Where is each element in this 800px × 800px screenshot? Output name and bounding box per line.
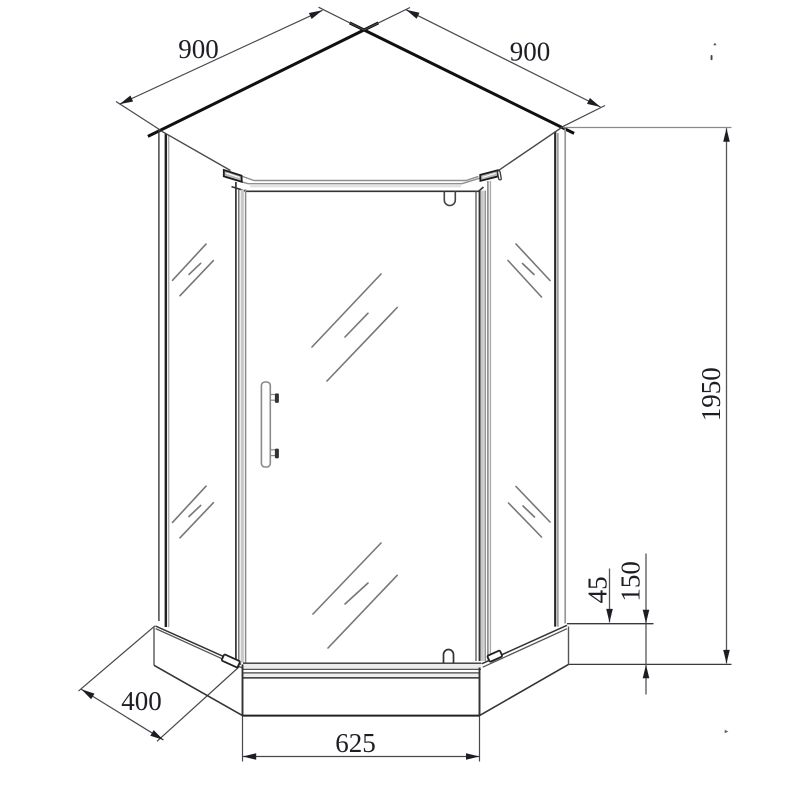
svg-text:400: 400 — [121, 686, 162, 716]
svg-text:625: 625 — [335, 728, 376, 758]
svg-text:900: 900 — [510, 37, 551, 67]
svg-text:45: 45 — [583, 576, 613, 603]
svg-text:900: 900 — [178, 34, 219, 64]
svg-text:150: 150 — [616, 561, 646, 602]
svg-text:1950: 1950 — [696, 367, 726, 421]
